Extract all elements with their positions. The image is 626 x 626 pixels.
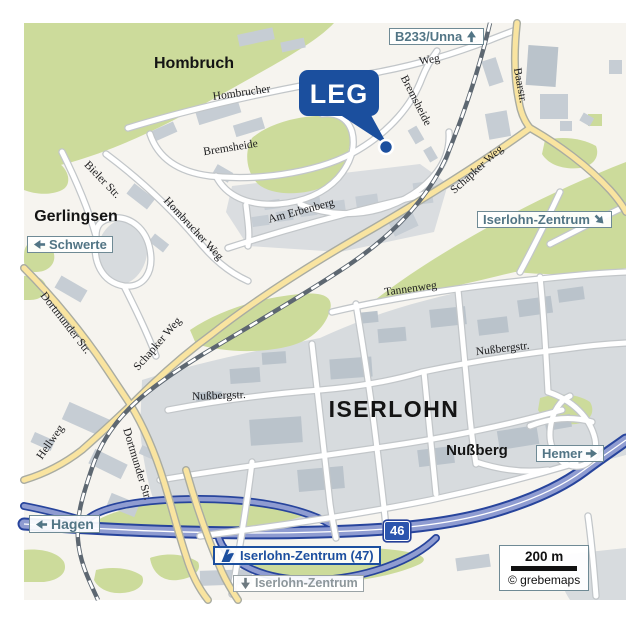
street-label-nussbergstr-w: Nußbergstr. [192,389,246,403]
sign-hemer-label: Hemer [542,447,582,460]
map-canvas: Hombrucher Weg Bremsheide Bremsheide Baa… [0,0,626,626]
arrow-left-icon [35,518,48,531]
scale-bar [511,566,577,571]
attribution: © grebemaps [508,573,580,587]
sign-autobahn-exit-47: Iserlohn-Zentrum (47) [213,546,381,565]
sign-schwerte: Schwerte [27,236,113,253]
arrow-down-icon [239,577,252,590]
scale-label: 200 m [525,549,563,564]
scale-box: 200 m © grebemaps [499,545,589,591]
motorway-number-badge: 46 [384,521,410,541]
place-label-hombruch: Hombruch [154,55,234,72]
place-label-iserlohn: ISERLOHN [329,396,460,422]
sign-iserlohn-zentrum-se: Iserlohn-Zentrum [477,211,612,228]
sign-iserlohn-zentrum-se-label: Iserlohn-Zentrum [483,213,590,226]
arrow-left-icon [33,238,46,251]
leg-marker-label: LEG [310,79,369,109]
sign-hemer: Hemer [536,445,604,462]
sign-b233-unna: B233/Unna [389,28,484,45]
motorway-number-label: 46 [390,523,404,538]
sign-iserlohn-zentrum-s: Iserlohn-Zentrum [233,575,364,592]
place-label-gerlingsen: Gerlingsen [34,208,118,225]
sign-hagen: Hagen [29,515,100,533]
arrow-up-icon [465,30,478,43]
autobahn-junction-icon [220,549,235,562]
sign-b233-unna-label: B233/Unna [395,30,462,43]
arrow-right-icon [585,447,598,460]
sign-iserlohn-zentrum-s-label: Iserlohn-Zentrum [255,577,358,590]
sign-schwerte-label: Schwerte [49,238,107,251]
sign-autobahn-exit-47-label: Iserlohn-Zentrum (47) [240,549,374,562]
leg-marker-dot [379,140,393,154]
arrow-down-right-icon [590,210,608,228]
sign-hagen-label: Hagen [51,517,94,531]
place-label-nussberg: Nußberg [446,442,508,459]
